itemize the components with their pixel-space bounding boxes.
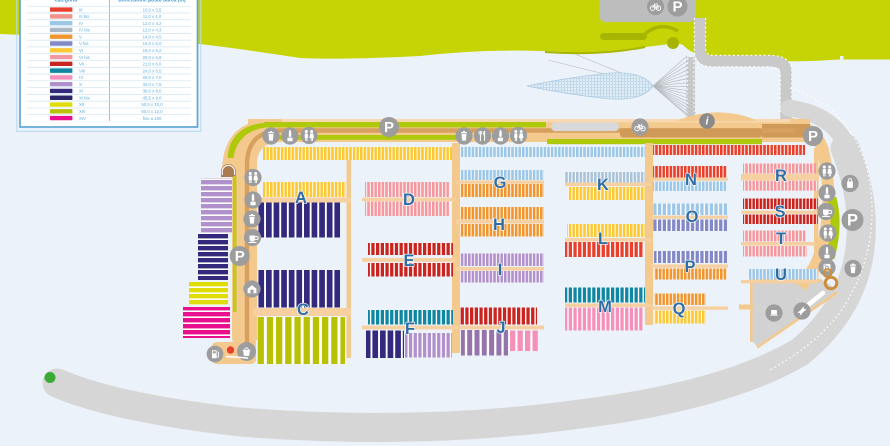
svg-text:categoria: categoria bbox=[55, 0, 77, 4]
svg-text:V bis: V bis bbox=[79, 41, 89, 46]
svg-text:H: H bbox=[493, 216, 505, 234]
svg-text:T: T bbox=[776, 230, 786, 248]
svg-text:60,0 x 12,0: 60,0 x 12,0 bbox=[141, 109, 163, 114]
svg-text:P: P bbox=[684, 258, 695, 276]
svg-text:14,0 x 4,5: 14,0 x 4,5 bbox=[143, 34, 162, 39]
svg-text:VI: VI bbox=[79, 48, 83, 53]
svg-text:III bis: III bis bbox=[79, 14, 89, 19]
svg-text:F: F bbox=[405, 320, 415, 338]
svg-text:U: U bbox=[775, 266, 787, 284]
svg-text:J: J bbox=[496, 319, 505, 337]
svg-text:16,0 x 5,0: 16,0 x 5,0 bbox=[143, 41, 162, 46]
svg-text:12,0 x 4,2: 12,0 x 4,2 bbox=[143, 21, 162, 26]
svg-text:28,0 x 7,0: 28,0 x 7,0 bbox=[143, 75, 162, 80]
svg-text:XI bis: XI bis bbox=[79, 95, 90, 100]
svg-text:C: C bbox=[297, 301, 309, 319]
svg-text:L: L bbox=[598, 230, 608, 248]
svg-text:X: X bbox=[79, 82, 82, 87]
svg-text:P: P bbox=[808, 128, 818, 145]
svg-text:XII: XII bbox=[79, 102, 84, 107]
svg-text:IX: IX bbox=[79, 75, 83, 80]
svg-text:O: O bbox=[686, 208, 699, 226]
svg-text:D: D bbox=[403, 191, 415, 209]
svg-text:I: I bbox=[498, 261, 503, 279]
svg-text:21,0 x 6,0: 21,0 x 6,0 bbox=[143, 62, 162, 67]
svg-text:20,0 x 5,8: 20,0 x 5,8 bbox=[143, 55, 162, 60]
svg-text:K: K bbox=[597, 176, 609, 194]
svg-text:P: P bbox=[235, 248, 245, 265]
svg-text:Dimensione posto barca (m): Dimensione posto barca (m) bbox=[118, 0, 186, 4]
svg-text:E: E bbox=[403, 252, 414, 270]
svg-text:VIII: VIII bbox=[79, 68, 85, 73]
svg-text:VII: VII bbox=[79, 62, 84, 67]
svg-text:18,0 x 5,2: 18,0 x 5,2 bbox=[143, 48, 162, 53]
svg-text:Q: Q bbox=[673, 300, 686, 318]
svg-text:P: P bbox=[672, 0, 682, 16]
svg-text:XIII: XIII bbox=[79, 109, 85, 114]
svg-text:P: P bbox=[847, 212, 858, 230]
svg-text:24,0 x 6,5: 24,0 x 6,5 bbox=[143, 68, 162, 73]
svg-text:10,0 x 3,5: 10,0 x 3,5 bbox=[143, 7, 162, 12]
svg-text:45,5 x 9,0: 45,5 x 9,0 bbox=[143, 95, 162, 100]
svg-text:III: III bbox=[79, 7, 83, 12]
svg-text:50,5 x 10,0: 50,5 x 10,0 bbox=[141, 102, 163, 107]
svg-text:VI bis: VI bis bbox=[79, 55, 90, 60]
svg-text:IV: IV bbox=[79, 21, 83, 26]
svg-text:IV bis: IV bis bbox=[79, 28, 90, 33]
svg-text:fino a 100: fino a 100 bbox=[143, 116, 162, 121]
svg-text:V: V bbox=[79, 34, 82, 39]
svg-text:R: R bbox=[775, 167, 787, 185]
svg-text:32,0 x 7,5: 32,0 x 7,5 bbox=[143, 82, 162, 87]
svg-text:N: N bbox=[685, 171, 697, 189]
svg-text:G: G bbox=[494, 174, 507, 192]
svg-text:13,0 x 4,3: 13,0 x 4,3 bbox=[143, 28, 162, 33]
svg-text:XIV: XIV bbox=[79, 116, 86, 121]
svg-text:M: M bbox=[598, 298, 612, 316]
svg-text:P: P bbox=[384, 119, 394, 136]
svg-text:A: A bbox=[295, 189, 307, 207]
svg-text:11,0 x 4,0: 11,0 x 4,0 bbox=[143, 14, 162, 19]
svg-text:36,0 x 8,0: 36,0 x 8,0 bbox=[143, 89, 162, 94]
svg-text:S: S bbox=[774, 203, 785, 221]
svg-text:XI: XI bbox=[79, 89, 83, 94]
